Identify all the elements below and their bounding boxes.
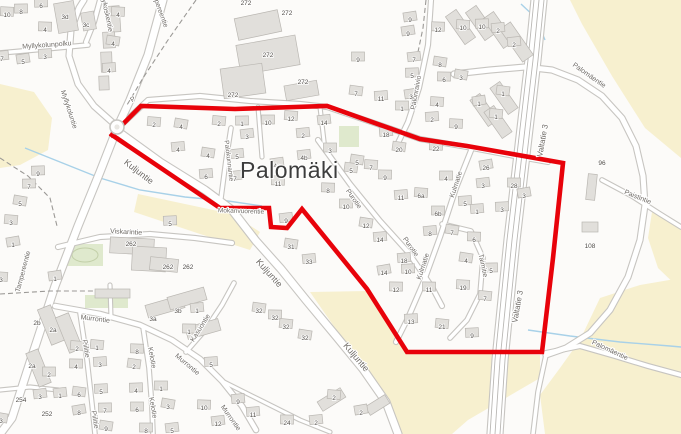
house-number: 9 [236,399,240,406]
house-number: 272 [282,10,293,17]
house-number: 5 [463,201,467,208]
house-number: 10 [459,25,467,32]
house-number: 7 [0,56,4,63]
house-number: 6 [442,77,446,84]
house-number: 8 [326,188,330,195]
house-number: 3 [245,134,249,141]
house-number: 13 [407,319,415,326]
house-number: 4 [179,124,183,131]
house-number: 7 [233,176,237,183]
house-number: 6 [77,392,81,399]
building [99,76,109,90]
house-number: 4 [116,12,120,19]
house-number: 1 [195,308,199,315]
house-number: 2 [496,28,500,35]
house-number: 5 [235,154,239,161]
house-number: 108 [585,243,596,250]
house-number: 11 [398,195,405,202]
house-number: 32 [282,324,290,331]
house-number: 10 [200,405,208,412]
house-number: 262 [163,264,174,271]
house-number: 9 [408,17,412,24]
house-number: 6 [472,237,476,244]
house-number: 8 [438,62,442,69]
house-number: 4 [464,258,468,265]
house-number: 272 [241,0,252,7]
house-number: 8 [135,349,139,356]
house-number: 22 [432,146,440,153]
house-number: 2a [49,327,57,334]
house-number: 5 [170,428,174,434]
house-number: 5 [18,201,22,208]
house-number: 6b [434,211,442,218]
house-number: 1 [475,209,479,216]
house-number: 3 [0,277,3,284]
house-number: 1 [501,91,505,98]
house-number: 10 [3,12,11,19]
house-number: 32 [301,335,309,342]
building [582,222,598,232]
house-number: 3 [38,394,42,401]
house-number: 14 [380,270,388,277]
house-number: 2 [430,117,434,124]
house-number: 2 [314,420,318,427]
house-number: 18 [400,258,408,265]
house-number: 1 [477,101,481,108]
house-number: 5 [349,168,353,175]
house-number: 20 [395,147,403,154]
house-number: 9 [454,124,458,131]
house-number: 4 [43,27,47,34]
house-number: 272 [298,79,309,86]
house-number: 4 [206,153,210,160]
house-number: 3 [98,362,102,369]
house-number: 3b [174,308,182,315]
house-number: 5 [355,160,359,167]
house-number: 32 [271,315,279,322]
house-number: 9 [104,426,108,433]
house-number: 33 [305,259,313,266]
house-number: 7 [27,184,31,191]
house-number: 5 [99,389,103,396]
house-number: 7 [103,408,107,415]
house-number: 1 [159,386,163,393]
house-number: 2 [359,410,363,417]
house-number: 2 [217,121,221,128]
house-number: 12 [287,116,295,123]
building [95,289,130,298]
house-number: 18 [382,132,390,139]
house-number: 7 [369,165,373,172]
house-number: 3 [409,94,413,101]
house-number: 10 [478,24,486,31]
house-number: 1 [95,345,99,352]
house-number: 2 [332,395,336,402]
house-number: 2 [152,122,156,129]
house-number: 3 [166,404,170,411]
house-number: 4 [111,41,115,48]
house-number: 8 [19,9,23,16]
house-number: 1 [400,106,404,113]
house-number: 7 [450,230,454,237]
house-number: 7 [354,91,358,98]
house-number: 9 [284,218,288,225]
house-number: 5 [21,59,25,66]
house-number: 11 [426,287,433,294]
house-number: 11 [250,412,257,419]
house-number: 3 [0,418,3,425]
house-number: 272 [263,52,274,59]
house-number: 7 [412,57,416,64]
house-number: 4 [444,176,448,183]
house-number: 3 [500,207,504,214]
house-number: 1 [53,276,57,283]
house-number: 2 [132,364,136,371]
house-number: 2 [75,346,79,353]
house-number: 3 [9,220,13,227]
house-number: 1 [240,121,244,128]
map-viewport[interactable]: MyllykolunpolkuMyllykoskentieMyllykolunt… [0,0,681,434]
house-number: 10 [264,120,272,127]
house-number: 12 [214,421,222,428]
map-canvas: MyllykolunpolkuMyllykoskentieMyllykolunt… [0,0,681,434]
house-number: 3 [522,193,526,200]
house-number: 10 [404,269,412,276]
house-number: 3 [459,75,463,82]
park-area [339,126,359,147]
house-number: 4 [435,102,439,109]
house-number: 9 [470,333,474,340]
house-number: 8 [428,231,432,238]
house-number: 10 [342,204,350,211]
house-number: 2 [512,42,516,49]
house-number: 21 [438,324,446,331]
house-number: 3a [149,316,157,323]
house-number: 4 [134,388,138,395]
house-number: 252 [42,411,53,418]
house-number: 9 [36,171,40,178]
house-number: 6a [417,193,425,200]
house-number: 28 [510,183,518,190]
place-label: Palomäki [240,157,339,184]
house-number: 254 [16,397,27,404]
house-number: 4 [107,68,111,75]
house-number: 5 [489,268,493,275]
roundabout [110,120,124,134]
house-number: 19 [459,285,467,292]
house-number: 12 [392,287,400,294]
house-number: 4 [74,364,78,371]
house-number: 8 [77,410,81,417]
house-number: 5 [209,362,213,369]
house-number: 3 [481,183,485,190]
house-number: 1 [187,329,191,336]
house-number: 3c [83,22,91,29]
house-number: 96 [598,160,606,167]
house-number: 5 [168,221,172,228]
house-number: 6 [204,174,208,181]
house-number: 24 [283,420,291,427]
house-number: 9 [406,31,410,38]
house-number: 272 [228,92,239,99]
house-number: 3d [61,14,69,21]
house-number: 1 [11,242,15,249]
house-number: 2b [33,320,41,327]
house-number: 2 [47,372,51,379]
roundabout-island [114,124,119,129]
house-number: 2a [28,363,36,370]
house-number: 11 [378,96,385,103]
house-number: 262 [183,264,194,271]
house-number: 14 [376,237,384,244]
house-number: 26 [482,165,490,172]
house-number: 9 [383,175,387,182]
house-number: 1 [58,393,62,400]
house-number: 12 [434,27,442,34]
house-number: 4 [176,147,180,154]
house-number: 5 [410,73,414,80]
house-number: 9 [356,57,360,64]
house-number: 8 [144,428,148,434]
house-number: 3 [43,54,47,61]
house-number: 12 [362,223,370,230]
house-number: 6 [135,407,139,414]
house-number: 31 [287,244,295,251]
house-number: 1 [494,114,498,121]
house-number: 3 [328,148,332,155]
house-number: 32 [255,308,263,315]
house-number: 7 [483,296,487,303]
house-number: 14 [320,120,328,127]
house-number: 262 [126,241,137,248]
house-number: 2 [301,133,305,140]
house-number: 6 [39,3,43,10]
